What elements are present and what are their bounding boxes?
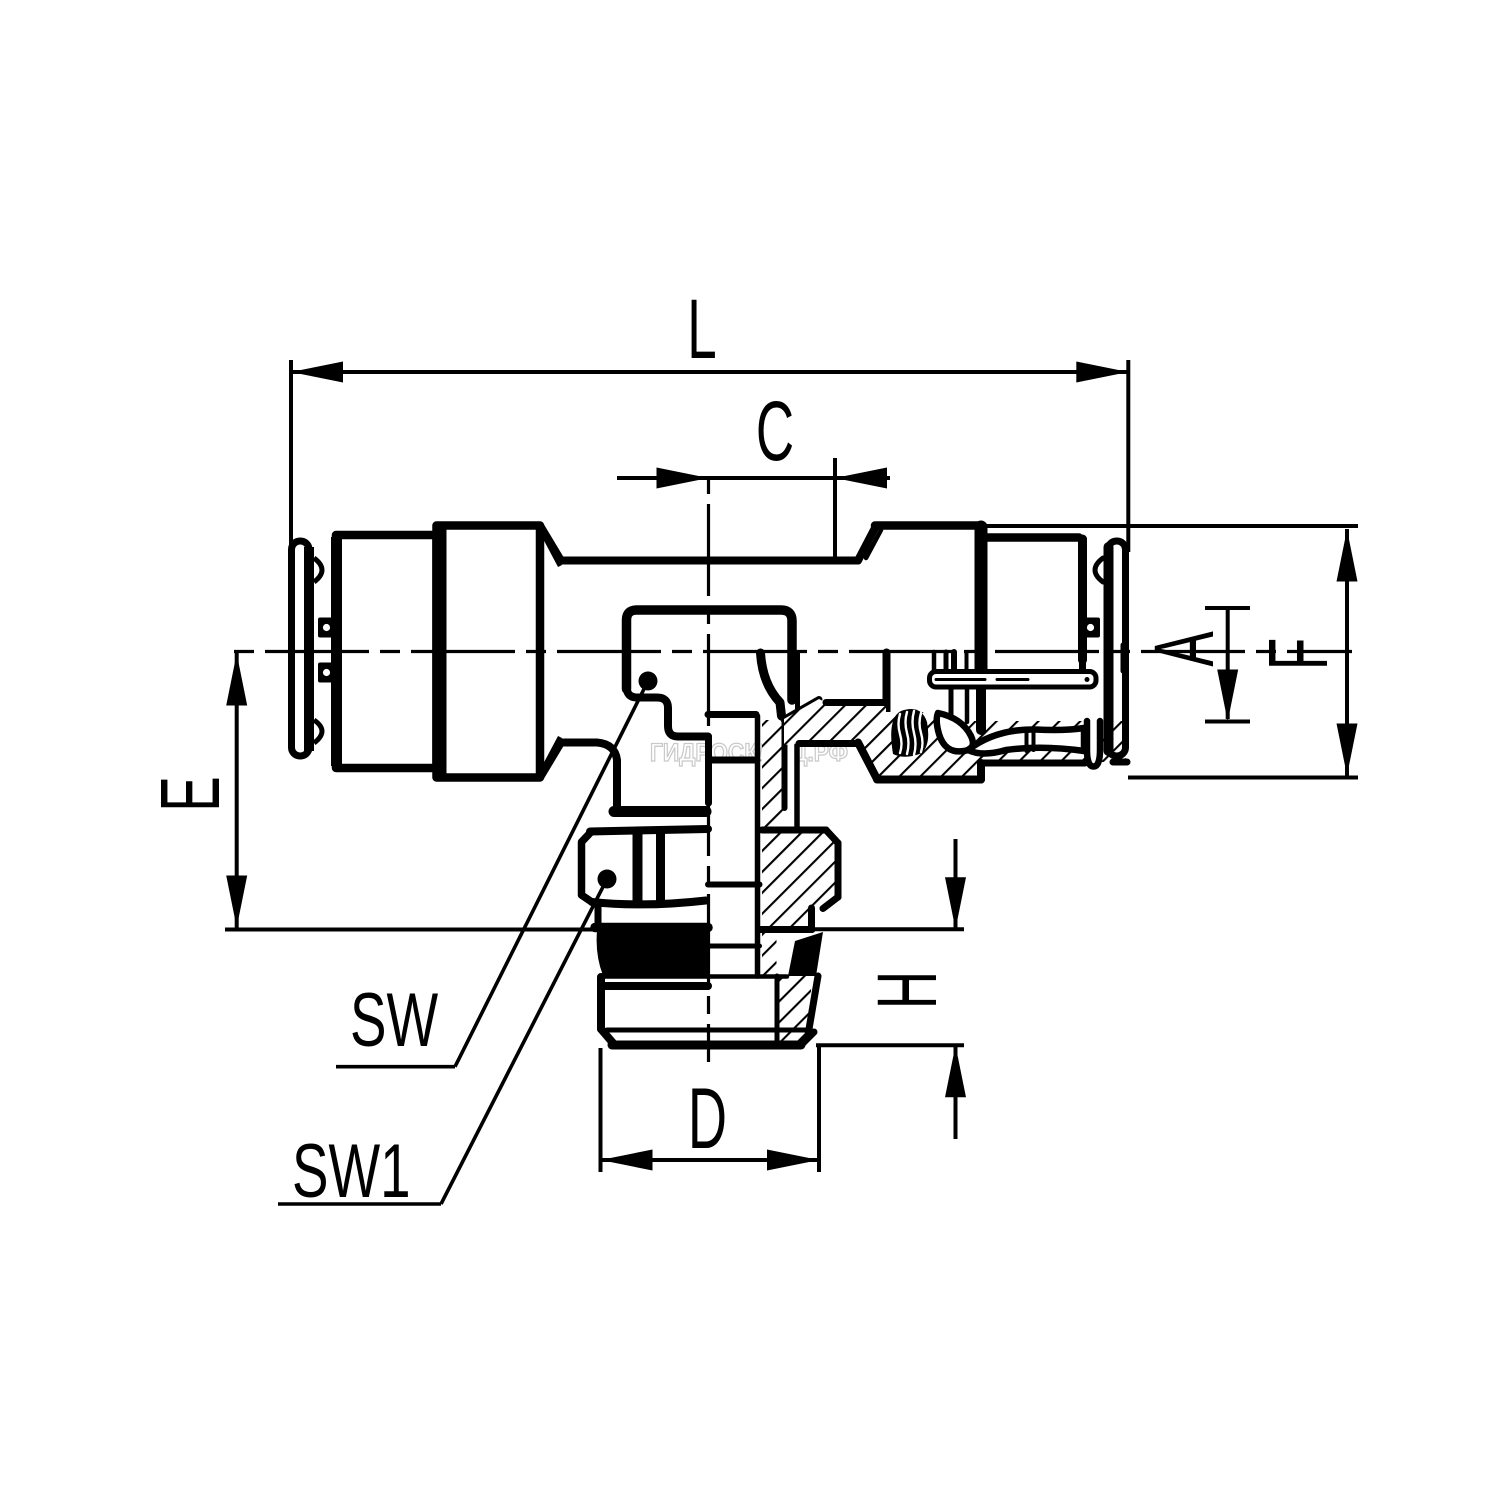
svg-text:H: H: [859, 971, 954, 1009]
svg-text:D: D: [688, 1071, 727, 1167]
svg-text:SW1: SW1: [292, 1129, 411, 1214]
svg-text:A: A: [1136, 631, 1231, 666]
svg-text:C: C: [756, 383, 794, 478]
svg-text:F: F: [1250, 638, 1345, 670]
svg-text:SW: SW: [350, 978, 439, 1063]
svg-text:E: E: [142, 776, 237, 811]
svg-text:L: L: [687, 281, 716, 376]
